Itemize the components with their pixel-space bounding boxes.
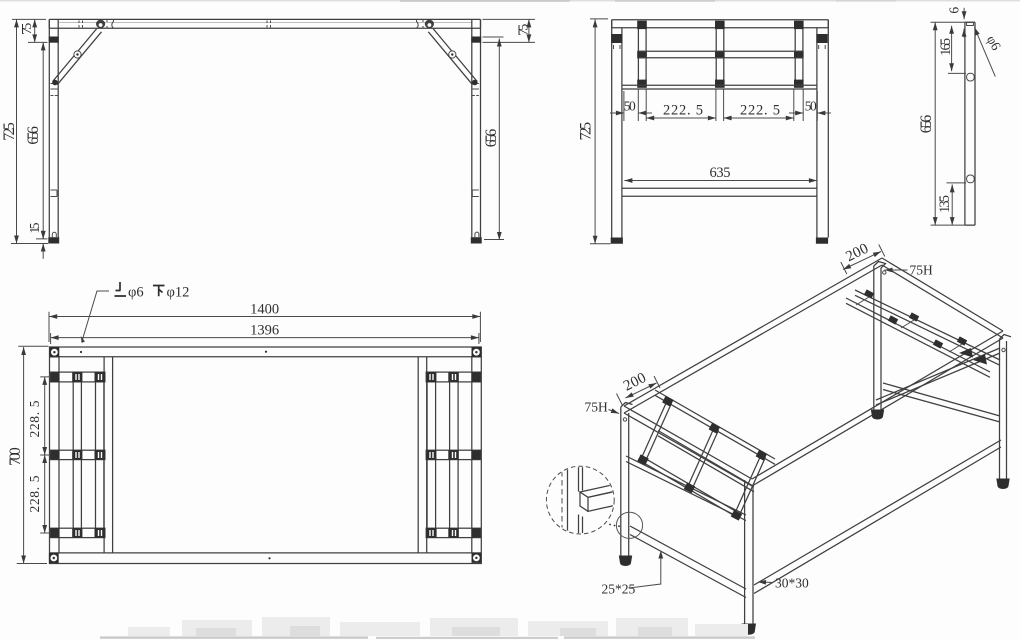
svg-text:φ12: φ12 — [167, 285, 190, 301]
svg-text:656: 656 — [483, 129, 500, 148]
svg-text:75H: 75H — [585, 400, 609, 415]
svg-text:25*25: 25*25 — [602, 582, 636, 597]
svg-text:656: 656 — [918, 115, 935, 134]
svg-text:1396: 1396 — [250, 323, 279, 339]
svg-text:656: 656 — [25, 126, 42, 145]
svg-text:50: 50 — [624, 99, 636, 114]
svg-text:135: 135 — [937, 195, 953, 213]
svg-text:φ6: φ6 — [128, 285, 144, 301]
svg-text:75: 75 — [517, 24, 532, 36]
svg-text:228. 5: 228. 5 — [27, 400, 42, 437]
svg-text:222. 5: 222. 5 — [663, 102, 703, 118]
svg-text:50: 50 — [805, 99, 817, 114]
svg-text:30*30: 30*30 — [775, 576, 809, 591]
svg-text:6: 6 — [947, 7, 962, 14]
svg-text:725: 725 — [1, 122, 18, 141]
svg-text:725: 725 — [578, 122, 595, 141]
svg-text:228. 5: 228. 5 — [27, 475, 42, 512]
svg-text:222. 5: 222. 5 — [740, 102, 780, 118]
svg-text:15: 15 — [27, 222, 42, 233]
svg-text:700: 700 — [7, 447, 24, 466]
svg-text:75: 75 — [20, 23, 35, 35]
svg-text:1400: 1400 — [250, 301, 279, 317]
svg-text:165: 165 — [938, 38, 954, 56]
svg-text:75H: 75H — [910, 263, 934, 278]
svg-text:635: 635 — [710, 165, 731, 181]
